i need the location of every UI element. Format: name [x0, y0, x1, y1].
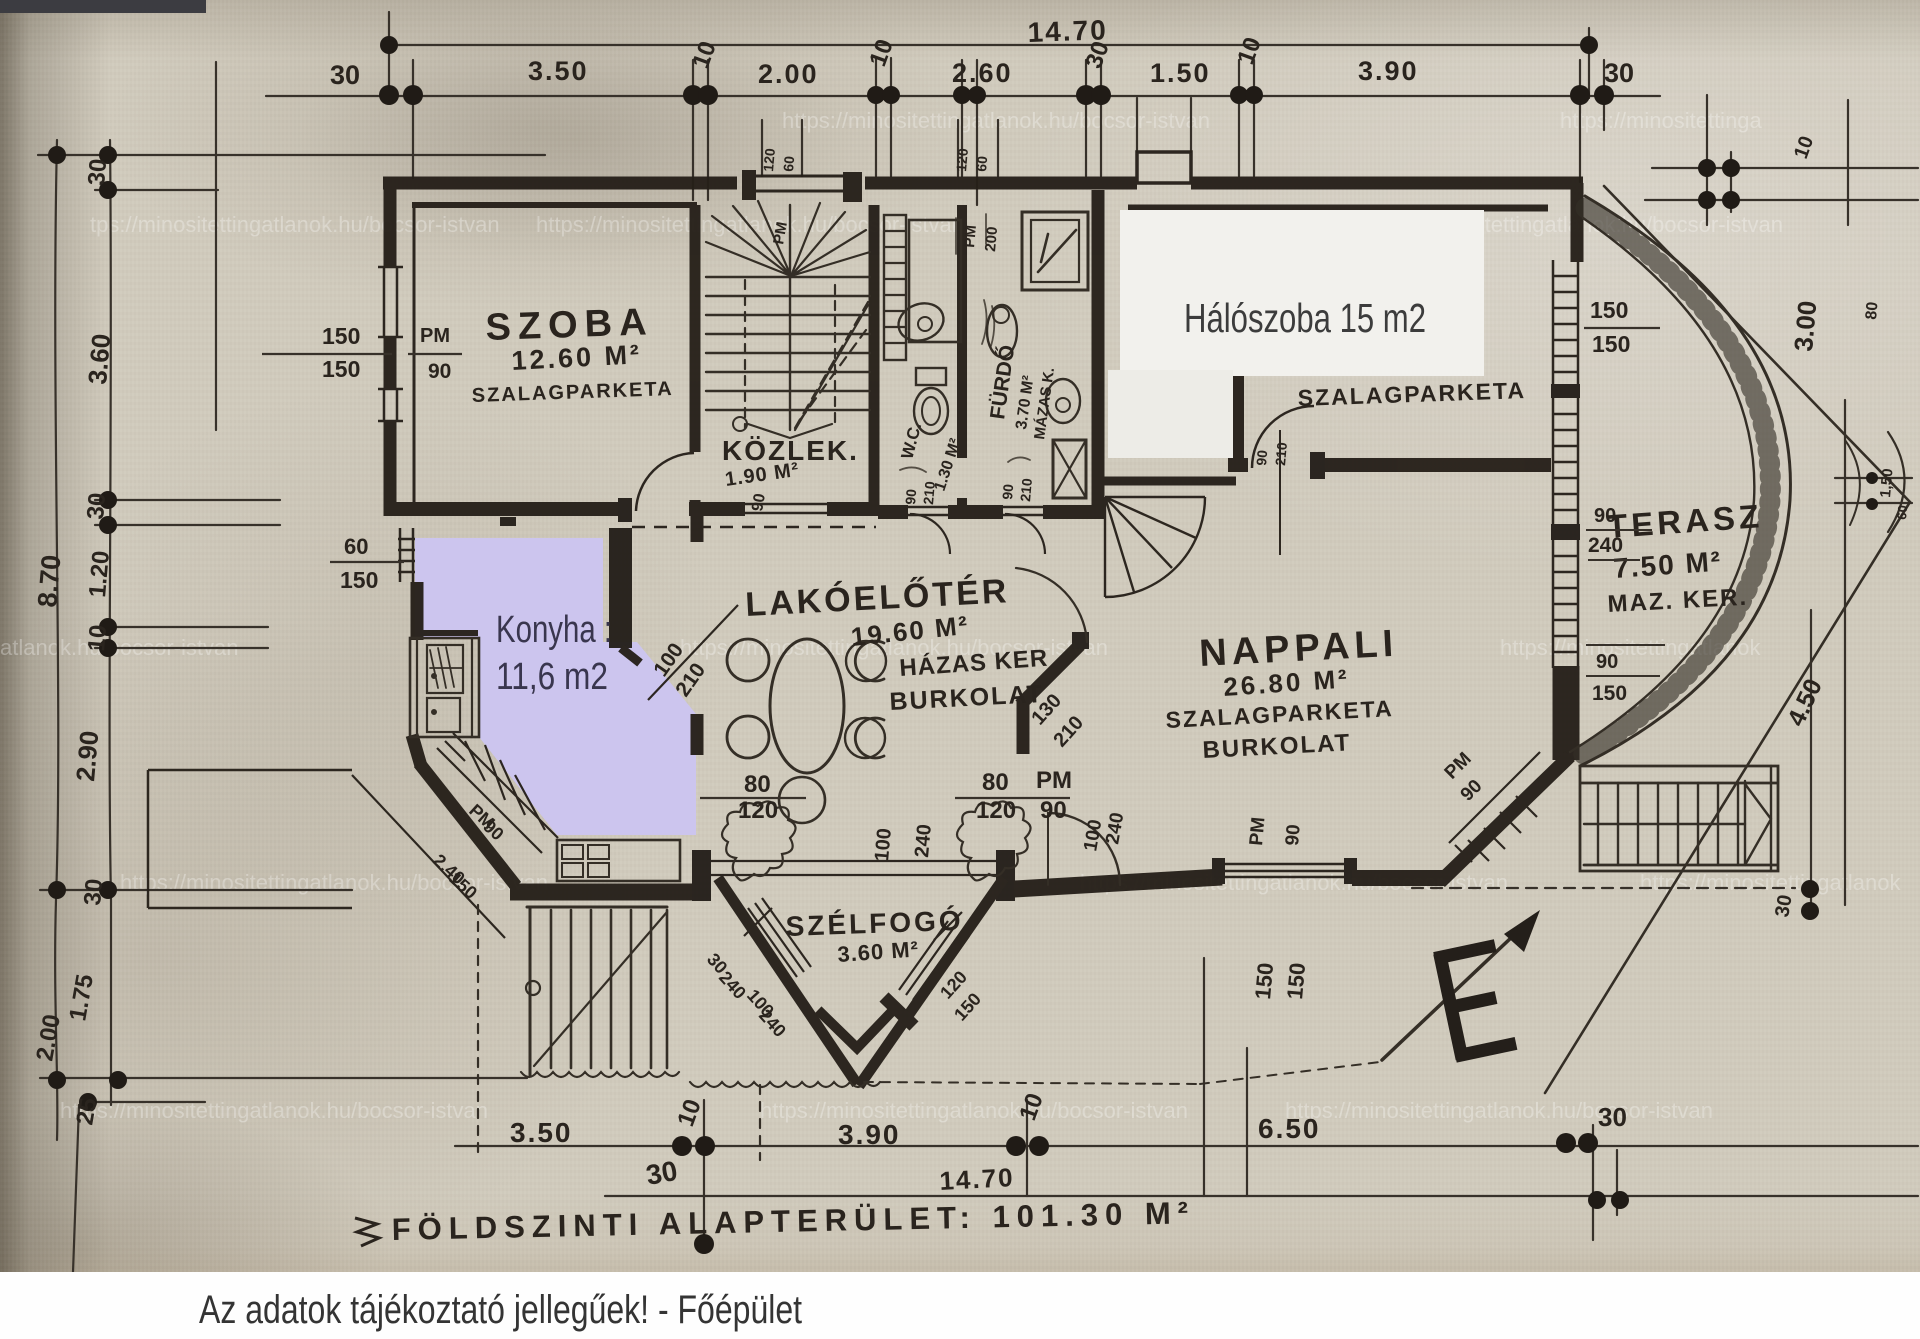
svg-text:90: 90: [1282, 824, 1305, 847]
svg-text:210: 210: [1017, 477, 1035, 502]
svg-text:6.50: 6.50: [1258, 1113, 1321, 1144]
svg-text:1.75: 1.75: [64, 972, 99, 1023]
svg-text:2.60: 2.60: [952, 58, 1013, 88]
svg-text:SZALAGPARKETA: SZALAGPARKETA: [1297, 377, 1526, 411]
svg-text:100: 100: [871, 827, 896, 862]
svg-text:2.90: 2.90: [70, 729, 104, 782]
svg-text:tps://minositettingatlanok.hu/: tps://minositettingatlanok.hu/bocsor-ist…: [90, 212, 500, 237]
svg-text:PM: PM: [420, 325, 450, 347]
svg-text:80: 80: [982, 769, 1009, 796]
svg-text:SZALAGPARKETA: SZALAGPARKETA: [1165, 695, 1394, 733]
svg-text:3.50: 3.50: [528, 56, 589, 86]
svg-text:7.50 M²: 7.50 M²: [1612, 545, 1723, 584]
svg-text:https://minositettingatlanok.h: https://minositettingatlanok.hu/bocsor-i…: [760, 1098, 1188, 1123]
svg-text:120: 120: [953, 147, 971, 172]
svg-text:10: 10: [1232, 34, 1267, 68]
svg-text:150: 150: [340, 567, 378, 593]
svg-text:150: 150: [1282, 962, 1310, 1001]
svg-text:60: 60: [1894, 505, 1910, 521]
svg-text:240: 240: [911, 823, 936, 858]
svg-text:3.60 M²: 3.60 M²: [837, 936, 920, 967]
svg-text:Konyha :: Konyha :: [496, 609, 612, 651]
svg-text:FÜRDŐ: FÜRDŐ: [986, 344, 1019, 421]
svg-text:3.50: 3.50: [510, 1117, 573, 1148]
svg-text:PM: PM: [770, 221, 791, 246]
svg-text:60: 60: [344, 534, 368, 559]
svg-text:BURKOLAT: BURKOLAT: [1202, 729, 1352, 764]
svg-text:150: 150: [1250, 962, 1278, 1001]
svg-text:150: 150: [1590, 297, 1628, 323]
svg-text:3.90: 3.90: [1358, 56, 1419, 86]
svg-text:PM: PM: [961, 224, 980, 248]
svg-text:SZÉLFOGÓ: SZÉLFOGÓ: [785, 905, 964, 942]
svg-text:1.50: 1.50: [1150, 58, 1211, 88]
svg-text:240: 240: [1102, 811, 1128, 846]
svg-text:200: 200: [982, 226, 1001, 252]
svg-text:210: 210: [1049, 712, 1088, 752]
svg-text:90: 90: [428, 360, 451, 383]
svg-text:120: 120: [738, 797, 778, 824]
svg-text:4.50: 4.50: [1782, 675, 1828, 731]
svg-text:3.00: 3.00: [1788, 299, 1822, 352]
svg-text:80: 80: [744, 771, 771, 798]
svg-text:80: 80: [1863, 301, 1881, 320]
svg-text:90: 90: [1253, 449, 1270, 466]
svg-text:90: 90: [1596, 651, 1618, 673]
svg-text:240: 240: [1588, 534, 1623, 557]
svg-text:90: 90: [999, 483, 1016, 500]
svg-text:120: 120: [976, 797, 1016, 824]
svg-text:14.70: 14.70: [939, 1162, 1016, 1196]
svg-text:1,50: 1,50: [1877, 468, 1896, 499]
svg-text:30: 30: [1598, 1102, 1627, 1132]
svg-text:30: 30: [1604, 58, 1634, 88]
svg-text:150: 150: [322, 356, 360, 382]
svg-text:90: 90: [1594, 505, 1616, 527]
svg-text:FÖLDSZINTI ALAPTERÜLET: 101.3: FÖLDSZINTI ALAPTERÜLET: 101.30 M²: [391, 1195, 1195, 1247]
svg-text:https://minositettingatlanok.h: https://minositettingatlanok.hu/bocsor-i…: [120, 870, 548, 895]
svg-text:https://minositettingatlanok.h: https://minositettingatlanok.hu/bocsor-i…: [1285, 1098, 1713, 1123]
svg-text:10: 10: [1790, 133, 1818, 161]
svg-text:30: 30: [1771, 893, 1797, 919]
svg-text:Hálószoba 15 m2: Hálószoba 15 m2: [1184, 295, 1426, 341]
svg-text:30: 30: [82, 492, 111, 521]
svg-text:60: 60: [780, 155, 797, 172]
svg-text:W.C.: W.C.: [898, 421, 926, 462]
svg-text:PM: PM: [1246, 816, 1269, 846]
svg-text:90: 90: [749, 492, 769, 513]
svg-text:12.60 M²: 12.60 M²: [511, 339, 643, 376]
svg-text:LAKÓELŐTÉR: LAKÓELŐTÉR: [744, 572, 1010, 624]
svg-text:120: 120: [760, 147, 778, 172]
svg-text:30: 30: [644, 1155, 680, 1191]
svg-text:10: 10: [83, 624, 112, 653]
svg-text:150: 150: [1592, 331, 1630, 357]
svg-text:3.60: 3.60: [82, 332, 116, 385]
svg-text:10: 10: [864, 36, 899, 70]
svg-text:2.00: 2.00: [758, 59, 819, 89]
svg-text:1.20: 1.20: [84, 550, 115, 599]
svg-text:SZALAGPARKETA: SZALAGPARKETA: [471, 378, 674, 407]
svg-text:10: 10: [672, 1096, 707, 1130]
svg-text:90: 90: [1457, 776, 1487, 806]
svg-text:25: 25: [71, 1096, 102, 1127]
svg-text:90: 90: [1040, 797, 1067, 824]
svg-text:11,6 m2: 11,6 m2: [496, 656, 608, 698]
svg-text:2.00: 2.00: [31, 1012, 66, 1063]
svg-text:60: 60: [973, 155, 990, 172]
svg-text:30: 30: [330, 60, 360, 90]
svg-text:150: 150: [1592, 682, 1627, 705]
svg-text:8.70: 8.70: [32, 554, 66, 609]
svg-text:30: 30: [79, 878, 108, 907]
svg-text:https://minositettingatlanok.h: https://minositettingatlanok.hu/bocsor-i…: [782, 108, 1210, 133]
svg-text:https://minositettinga: https://minositettinga: [1560, 108, 1763, 133]
svg-text:30: 30: [83, 158, 112, 187]
svg-text:90: 90: [902, 488, 919, 505]
svg-text:210: 210: [1272, 441, 1290, 466]
svg-text:TERASZ: TERASZ: [1606, 497, 1764, 545]
svg-text:210: 210: [920, 480, 938, 505]
svg-text:3.90: 3.90: [838, 1119, 901, 1150]
svg-text:150: 150: [322, 323, 360, 349]
svg-text:PM: PM: [1036, 767, 1072, 794]
